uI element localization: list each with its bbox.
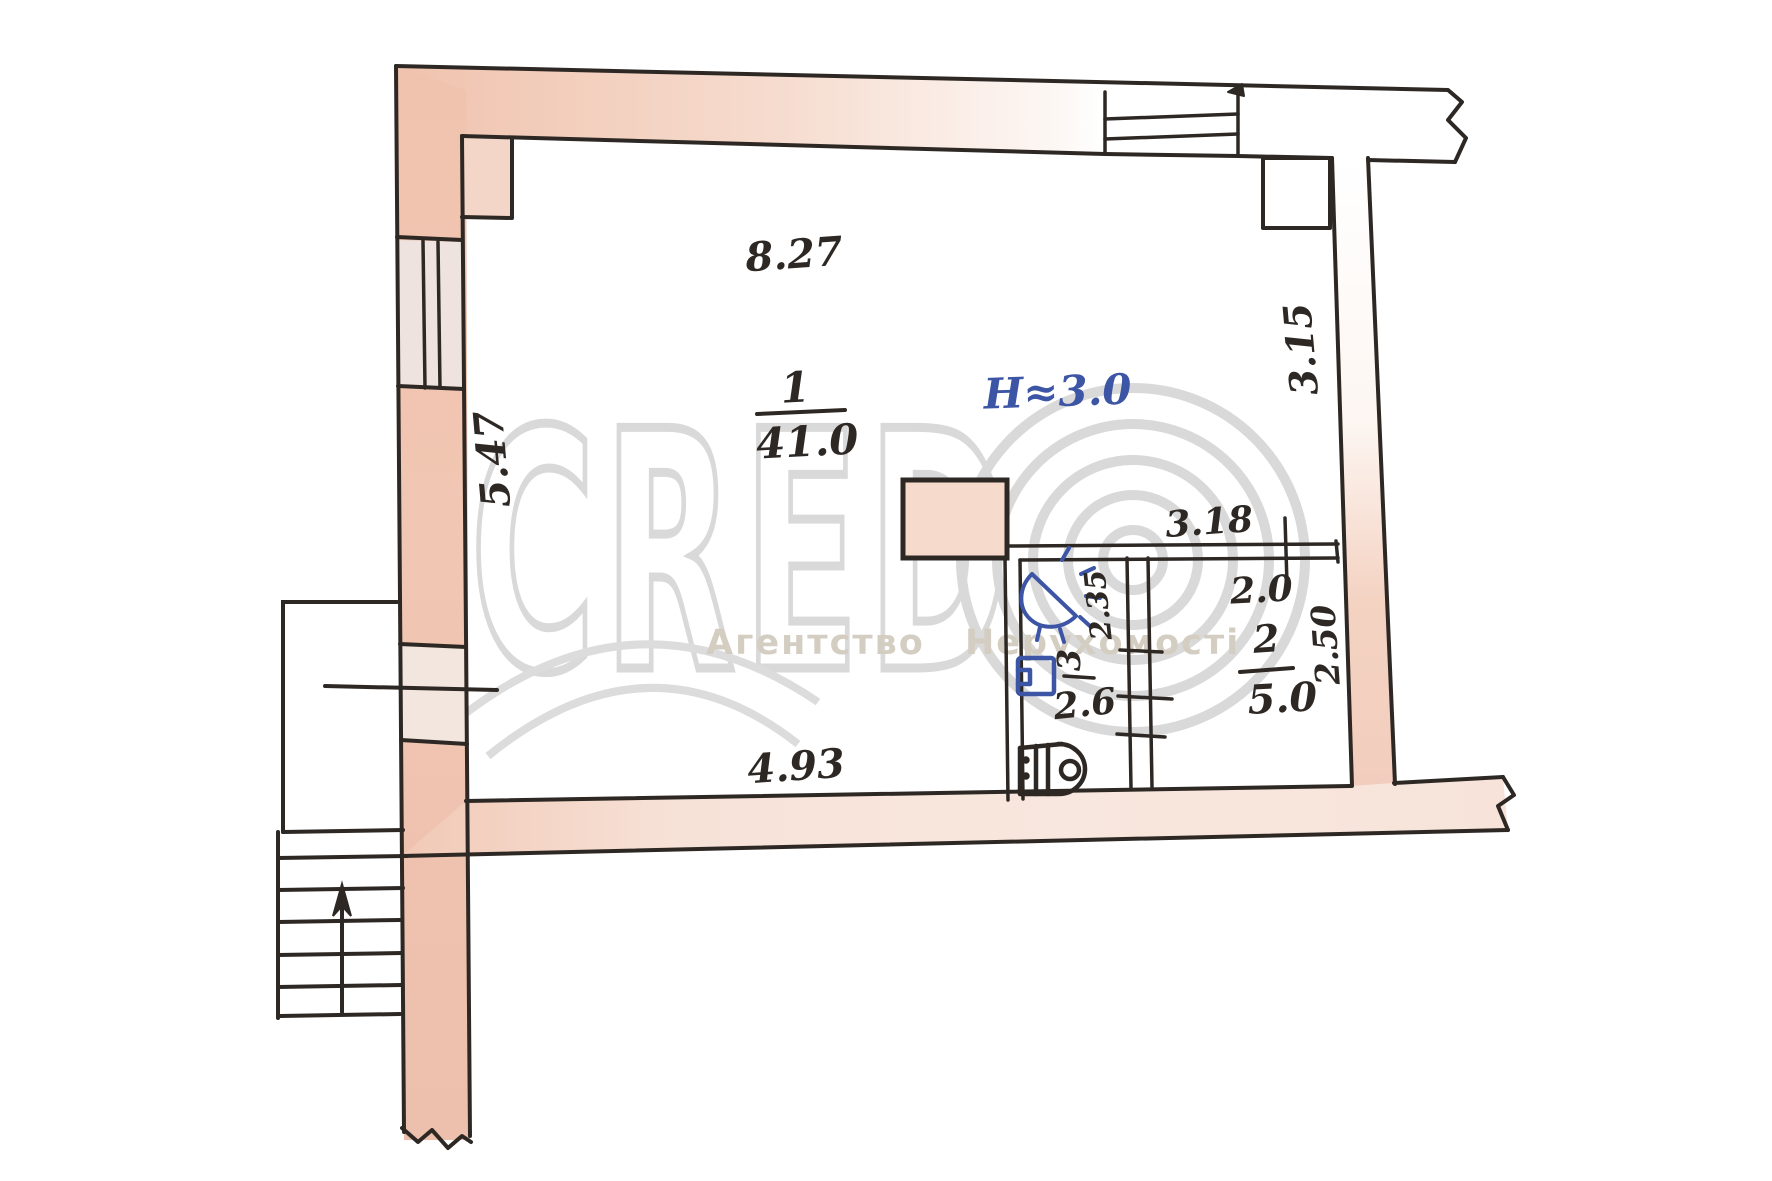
landing [283,602,397,832]
dim-left-height: 5.47 [465,408,520,509]
left-wall [396,66,470,1140]
dim-room2-width: 2.0 [1228,567,1294,612]
dim-right-upper-height: 3.15 [1274,301,1327,397]
corner-column [1263,158,1330,228]
dim-bottom-width: 4.93 [746,740,846,794]
room3-number: 3 [1050,649,1088,671]
dim-room2-depth: 2.50 [1303,603,1348,687]
room3-number-underline [1064,676,1094,678]
top-wall-stub-line [1368,160,1455,162]
watermark-caption: Агентство Нерухомості [706,623,1240,663]
floor-plan-drawing: CRED Агентство Нерухомості [0,0,1772,1181]
room1-area: 41.0 [755,414,860,468]
left-wall-window-section [398,240,464,388]
pillar [903,480,1007,558]
corner-pilaster [462,136,512,218]
floor-plan-scan: CRED Агентство Нерухомості [0,0,1772,1181]
ceiling-height-note: H≈3.0 [982,364,1133,418]
left-wall-door-section [400,646,467,742]
dim-bath-width: 2.6 [1050,680,1118,728]
dim-partition-length: 3.18 [1164,498,1254,546]
stairs-up-arrow [333,884,351,1012]
toilet-icon [1020,744,1085,794]
room1-number: 1 [779,362,811,412]
room2-number-underline [1240,668,1293,672]
room2-number: 2 [1250,615,1281,662]
dim-top-width: 8.27 [743,228,845,282]
top-window-fill [1105,90,1238,156]
